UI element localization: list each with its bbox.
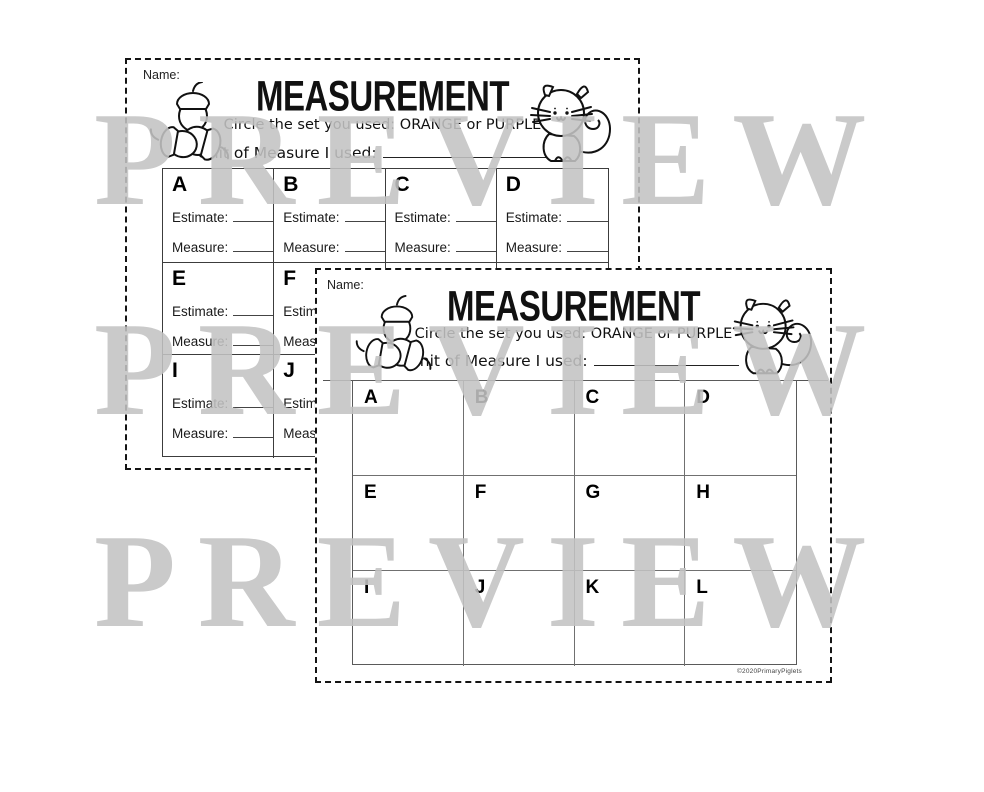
grid-cell: H [685, 476, 796, 571]
cell-letter: C [395, 174, 489, 195]
grid-cell: C [575, 381, 686, 476]
cell-letter: I [172, 360, 266, 381]
cell-letter: G [586, 483, 685, 502]
estimate-label: Estimate: [172, 304, 228, 319]
circle-set-instruction: Circle the set you used: ORANGE or PURPL… [415, 326, 733, 342]
acorn-cluster-icon [353, 295, 439, 381]
acorn-cluster-icon [147, 82, 237, 170]
grid-cell: AEstimate:Measure: [163, 169, 274, 263]
cell-letter: B [283, 174, 377, 195]
cell-letter: C [586, 388, 685, 407]
estimate-blank [345, 210, 386, 222]
estimate-label: Estimate: [172, 210, 228, 225]
estimate-label: Estimate: [283, 210, 339, 225]
measure-blank [233, 240, 274, 252]
front-worksheet-page: Name: MEASUREMENT Circle the set you use… [315, 268, 832, 683]
measure-blank [233, 426, 274, 438]
grid-cell: G [575, 476, 686, 571]
copyright-text: ©2020PrimaryPiglets [737, 668, 802, 675]
cell-letter: I [364, 578, 463, 597]
cell-letter: E [172, 268, 266, 289]
circle-set-instruction: Circle the set you used: ORANGE or PURPL… [224, 117, 542, 133]
estimate-label: Estimate: [506, 210, 562, 225]
squirrel-icon [522, 82, 614, 174]
measure-blank [345, 240, 386, 252]
grid-cell: B [464, 381, 575, 476]
cell-letter: F [475, 483, 574, 502]
grid-cell: L [685, 571, 796, 666]
measurement-grid: A B C D E F G H I J K L [352, 380, 797, 665]
grid-cell: D [685, 381, 796, 476]
squirrel-icon [725, 295, 815, 387]
grid-cell: I [353, 571, 464, 666]
worksheet-title: MEASUREMENT [256, 72, 509, 121]
estimate-blank [233, 304, 274, 316]
measure-label: Measure: [506, 240, 562, 255]
estimate-label: Estimate: [395, 210, 451, 225]
measure-label: Measure: [395, 240, 451, 255]
grid-cell: E [353, 476, 464, 571]
measure-label: Measure: [172, 240, 228, 255]
estimate-blank [233, 210, 274, 222]
grid-cell: J [464, 571, 575, 666]
unit-of-measure-blank [594, 351, 739, 366]
cell-letter: L [696, 578, 796, 597]
estimate-blank [567, 210, 608, 222]
grid-cell: BEstimate:Measure: [274, 169, 385, 263]
measure-label: Measure: [172, 426, 228, 441]
measure-label: Measure: [283, 240, 339, 255]
cell-letter: J [475, 578, 574, 597]
grid-cell: F [464, 476, 575, 571]
measure-blank [456, 240, 497, 252]
grid-cell: IEstimate:Measure: [163, 355, 274, 458]
grid-cell: EEstimate:Measure: [163, 263, 274, 355]
grid-cell: DEstimate:Measure: [497, 169, 608, 263]
cell-letter: K [586, 578, 685, 597]
cell-letter: A [364, 388, 463, 407]
cell-letter: A [172, 174, 266, 195]
estimate-blank [456, 210, 497, 222]
preview-canvas: Name: MEASUREMENT Circle the set you use… [0, 0, 984, 792]
measure-blank [233, 334, 274, 346]
cell-letter: D [696, 388, 796, 407]
grid-cell: A [353, 381, 464, 476]
estimate-blank [233, 396, 274, 408]
grid-cell: CEstimate:Measure: [386, 169, 497, 263]
estimate-label: Estimate: [172, 396, 228, 411]
measure-blank [567, 240, 608, 252]
grid-cell: K [575, 571, 686, 666]
cell-letter: H [696, 483, 796, 502]
worksheet-title: MEASUREMENT [447, 282, 700, 331]
cell-letter: E [364, 483, 463, 502]
cell-letter: D [506, 174, 601, 195]
measure-label: Measure: [172, 334, 228, 349]
cell-letter: B [475, 388, 574, 407]
